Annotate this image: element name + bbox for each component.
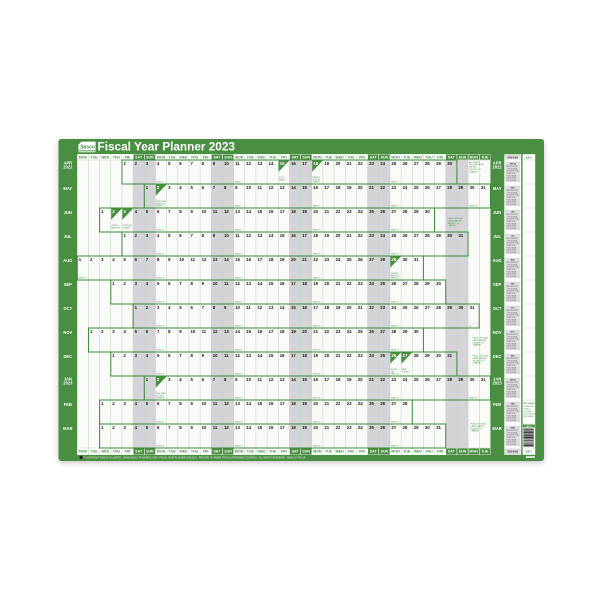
svg-text:T 4 11 18 25: T 4 11 18 25: [507, 221, 516, 223]
svg-text:10: 10: [213, 281, 218, 286]
svg-text:22: 22: [369, 305, 374, 310]
svg-text:F 5 12 19 26: F 5 12 19 26: [507, 247, 516, 249]
svg-text:SUN: SUN: [224, 450, 232, 454]
svg-text:17: 17: [302, 161, 307, 166]
svg-text:FRI: FRI: [437, 156, 443, 160]
svg-text:18: 18: [324, 305, 329, 310]
svg-text:20: 20: [358, 185, 363, 190]
svg-text:W 3 10 17 24 31: W 3 10 17 24 31: [507, 315, 519, 317]
svg-text:27: 27: [403, 281, 408, 286]
svg-text:S 6 13 20 27: S 6 13 20 27: [507, 346, 516, 348]
svg-text:T 4 11 18 25: T 4 11 18 25: [507, 197, 516, 199]
svg-text:WEEK 27: WEEK 27: [235, 325, 243, 327]
svg-text:18: 18: [302, 281, 307, 286]
svg-text:S 6 13 20 27: S 6 13 20 27: [507, 250, 516, 252]
svg-text:Sasco: Sasco: [80, 145, 95, 151]
svg-text:14: 14: [246, 401, 251, 406]
svg-text:24: 24: [336, 257, 341, 262]
svg-text:MAR: MAR: [492, 426, 501, 431]
svg-text:18: 18: [291, 209, 296, 214]
svg-text:S 6 13 20 27: S 6 13 20 27: [507, 226, 516, 228]
svg-text:SUN: SUN: [302, 450, 310, 454]
svg-text:CHANGE: CHANGE: [448, 224, 457, 227]
svg-text:14: 14: [269, 233, 274, 238]
svg-text:14: 14: [257, 281, 262, 286]
svg-text:29: 29: [436, 233, 441, 238]
svg-text:T 2 9 16 23 30: T 2 9 16 23 30: [507, 360, 518, 362]
svg-text:S 7 14 21 28: S 7 14 21 28: [507, 300, 516, 302]
svg-text:20: 20: [358, 377, 363, 382]
svg-text:WEEK 38: WEEK 38: [156, 397, 164, 399]
svg-text:W 3 10 17 24 31: W 3 10 17 24 31: [507, 219, 519, 221]
svg-text:27: 27: [425, 305, 430, 310]
svg-text:2024/25: 2024/25: [507, 450, 518, 454]
svg-text:SEP: SEP: [64, 282, 72, 287]
svg-text:21: 21: [347, 233, 352, 238]
svg-text:WEEK 37: WEEK 37: [391, 373, 399, 375]
svg-text:17: 17: [269, 329, 274, 334]
svg-text:F 5 12 19 26: F 5 12 19 26: [507, 319, 516, 321]
svg-text:S 7 14 21 28: S 7 14 21 28: [507, 372, 516, 374]
svg-text:16: 16: [280, 353, 285, 358]
svg-text:28: 28: [436, 305, 441, 310]
svg-text:M 1 8 15 22 29: M 1 8 15 22 29: [507, 238, 518, 240]
svg-text:SUN: SUN: [146, 450, 154, 454]
svg-text:T 4 11 18 25: T 4 11 18 25: [507, 173, 516, 175]
svg-text:30: 30: [436, 353, 441, 358]
svg-text:26: 26: [403, 233, 408, 238]
svg-text:13: 13: [235, 425, 240, 430]
svg-text:MON: MON: [391, 156, 400, 160]
svg-text:THU: THU: [425, 156, 433, 160]
svg-text:27: 27: [414, 233, 419, 238]
svg-text:F 5 12 19 26: F 5 12 19 26: [507, 271, 516, 273]
svg-text:25: 25: [369, 401, 374, 406]
svg-text:F 5 12 19 26: F 5 12 19 26: [507, 175, 516, 177]
svg-text:28: 28: [403, 425, 408, 430]
svg-text:WEEK 6: WEEK 6: [156, 205, 163, 207]
svg-text:31: 31: [436, 425, 441, 430]
svg-text:24: 24: [391, 305, 396, 310]
svg-text:29: 29: [436, 161, 441, 166]
svg-text:S 6 13 20 27: S 6 13 20 27: [507, 394, 516, 396]
svg-text:2022: 2022: [63, 165, 73, 170]
svg-text:M 1 8 15 22 29: M 1 8 15 22 29: [507, 310, 518, 312]
svg-text:17: 17: [280, 425, 285, 430]
svg-text:14: 14: [291, 185, 296, 190]
svg-text:15: 15: [302, 185, 307, 190]
svg-text:23: 23: [324, 257, 329, 262]
svg-text:T 4 11 18 25: T 4 11 18 25: [507, 413, 516, 415]
svg-text:WEEK 11: WEEK 11: [235, 229, 243, 231]
svg-text:WED: WED: [414, 156, 423, 160]
svg-text:F 5 12 19 26: F 5 12 19 26: [507, 367, 516, 369]
svg-text:TUE: TUE: [169, 450, 177, 454]
svg-text:S 7 14 21 28: S 7 14 21 28: [507, 228, 516, 230]
svg-text:15: 15: [280, 233, 285, 238]
svg-text:S 6 13 20 27: S 6 13 20 27: [507, 298, 516, 300]
svg-text:19: 19: [280, 257, 285, 262]
svg-text:10: 10: [246, 377, 251, 382]
svg-text:SAT: SAT: [135, 156, 143, 160]
svg-text:17: 17: [291, 281, 296, 286]
svg-text:WEEK 4: WEEK 4: [313, 181, 320, 183]
svg-text:18: 18: [291, 425, 296, 430]
svg-text:SAT: SAT: [213, 450, 221, 454]
svg-text:28: 28: [447, 185, 452, 190]
svg-text:SUN: SUN: [459, 156, 467, 160]
svg-text:OCT: OCT: [493, 306, 502, 311]
svg-text:26: 26: [425, 377, 430, 382]
svg-text:12: 12: [269, 377, 274, 382]
svg-text:31: 31: [481, 185, 486, 190]
svg-text:28: 28: [425, 161, 430, 166]
svg-text:12: 12: [269, 185, 274, 190]
svg-text:W 3 10 17 24 31: W 3 10 17 24 31: [507, 435, 519, 437]
svg-text:26: 26: [391, 353, 397, 358]
svg-text:30: 30: [447, 161, 452, 166]
svg-text:F 5 12 19 26: F 5 12 19 26: [507, 199, 516, 201]
svg-text:S 7 14 21 28: S 7 14 21 28: [507, 348, 516, 350]
svg-text:14: 14: [280, 305, 285, 310]
svg-text:WEEK 2: WEEK 2: [156, 181, 163, 183]
svg-text:27: 27: [369, 257, 374, 262]
svg-text:WEEK 26: WEEK 26: [156, 325, 164, 327]
svg-text:SAT: SAT: [448, 450, 456, 454]
svg-text:WEEK 21: WEEK 21: [391, 277, 399, 279]
svg-text:20: 20: [313, 209, 318, 214]
svg-text:F 5 12 19 26: F 5 12 19 26: [507, 391, 516, 393]
svg-text:30: 30: [470, 185, 475, 190]
svg-text:30: 30: [470, 377, 475, 382]
svg-text:T 4 11 18 25: T 4 11 18 25: [507, 341, 516, 343]
svg-text:18: 18: [336, 185, 341, 190]
svg-text:S 6 13 20 27: S 6 13 20 27: [507, 322, 516, 324]
svg-text:23: 23: [347, 425, 352, 430]
svg-text:TUE: TUE: [325, 156, 333, 160]
svg-text:30: 30: [425, 425, 430, 430]
svg-text:THU: THU: [191, 450, 199, 454]
svg-text:24: 24: [403, 377, 408, 382]
svg-text:WEEK 28: WEEK 28: [313, 325, 321, 327]
svg-text:KEY: KEY: [526, 450, 533, 454]
svg-text:25: 25: [369, 209, 374, 214]
svg-text:SASCO: SASCO: [526, 425, 533, 428]
svg-text:17: 17: [280, 401, 285, 406]
svg-text:11: 11: [224, 353, 229, 358]
svg-text:28: 28: [414, 353, 419, 358]
svg-text:26: 26: [380, 425, 385, 430]
svg-text:16: 16: [291, 161, 296, 166]
svg-text:29: 29: [447, 305, 452, 310]
svg-text:16: 16: [246, 257, 251, 262]
svg-text:WEEK 19: WEEK 19: [235, 277, 243, 279]
svg-text:26: 26: [403, 161, 408, 166]
svg-text:THU: THU: [191, 156, 199, 160]
svg-text:MAR: MAR: [63, 426, 72, 431]
svg-text:F 5 12 19 26: F 5 12 19 26: [507, 223, 516, 225]
svg-text:MON: MON: [391, 450, 400, 454]
svg-text:30: 30: [414, 329, 419, 334]
svg-text:F 5 12 19 26: F 5 12 19 26: [507, 295, 516, 297]
svg-text:APR 24: APR 24: [510, 162, 516, 165]
svg-text:© COPYRIGHT SASCO UK LIMITED ·: © COPYRIGHT SASCO UK LIMITED · WWW.SASCO…: [84, 457, 306, 460]
svg-text:29: 29: [425, 353, 430, 358]
svg-text:18: 18: [336, 377, 341, 382]
svg-text:14: 14: [257, 353, 262, 358]
svg-text:M 1 8 15 22 29: M 1 8 15 22 29: [507, 262, 518, 264]
svg-text:22: 22: [347, 281, 352, 286]
svg-text:S 6 13 20 27: S 6 13 20 27: [507, 418, 516, 420]
svg-text:TUE: TUE: [90, 156, 98, 160]
svg-text:19: 19: [347, 185, 352, 190]
svg-text:11: 11: [235, 233, 240, 238]
svg-text:WED: WED: [336, 156, 345, 160]
svg-text:WEEK 29: WEEK 29: [391, 325, 399, 327]
svg-text:27: 27: [391, 425, 396, 430]
svg-text:S 6 13 20 27: S 6 13 20 27: [507, 202, 516, 204]
svg-text:13: 13: [269, 305, 274, 310]
svg-text:28: 28: [425, 233, 430, 238]
svg-text:27: 27: [436, 185, 441, 190]
svg-text:WEEK 14: WEEK 14: [156, 253, 164, 255]
svg-text:23: 23: [391, 185, 396, 190]
svg-text:TUE: TUE: [325, 450, 333, 454]
svg-text:T 4 11 18 25: T 4 11 18 25: [507, 389, 516, 391]
svg-text:16: 16: [269, 401, 274, 406]
svg-text:2022: 2022: [493, 165, 503, 170]
svg-text:29: 29: [391, 257, 397, 262]
svg-text:25: 25: [414, 377, 419, 382]
svg-text:15: 15: [257, 209, 262, 214]
svg-text:TUE: TUE: [403, 450, 411, 454]
svg-text:CHANGE: CHANGE: [473, 344, 482, 347]
svg-text:CHANGE: CHANGE: [471, 430, 480, 433]
svg-text:F 5 12 19 26: F 5 12 19 26: [507, 343, 516, 345]
svg-text:THU: THU: [347, 156, 355, 160]
svg-text:16: 16: [302, 305, 307, 310]
svg-text:26: 26: [380, 209, 385, 214]
svg-text:JAN 25: JAN 25: [510, 378, 516, 381]
svg-text:WEEK 23: WEEK 23: [235, 301, 243, 303]
svg-text:20: 20: [302, 329, 307, 334]
svg-text:16: 16: [313, 377, 318, 382]
svg-text:MON: MON: [470, 450, 479, 454]
svg-text:SAT: SAT: [370, 450, 378, 454]
svg-text:31: 31: [414, 257, 419, 262]
svg-text:WEEK 5: WEEK 5: [391, 181, 398, 183]
svg-text:SUN: SUN: [302, 156, 310, 160]
svg-text:SEE DATES: SEE DATES: [524, 415, 535, 418]
svg-text:12: 12: [257, 305, 262, 310]
svg-text:WEEK 47: WEEK 47: [235, 445, 243, 447]
svg-text:21: 21: [324, 401, 329, 406]
svg-text:14: 14: [291, 377, 296, 382]
svg-text:13: 13: [213, 257, 218, 262]
svg-text:18: 18: [280, 329, 285, 334]
svg-text:15: 15: [302, 377, 307, 382]
svg-text:16: 16: [313, 185, 318, 190]
svg-text:W 3 10 17 24 31: W 3 10 17 24 31: [507, 411, 519, 413]
svg-text:14: 14: [235, 329, 240, 334]
svg-text:13: 13: [280, 377, 285, 382]
svg-text:17: 17: [291, 353, 296, 358]
svg-text:M 1 8 15 22 29: M 1 8 15 22 29: [507, 214, 518, 216]
svg-text:21: 21: [313, 329, 318, 334]
svg-text:26: 26: [414, 305, 419, 310]
svg-text:22: 22: [313, 257, 318, 262]
svg-text:NOV: NOV: [493, 330, 502, 335]
svg-text:11: 11: [257, 185, 262, 190]
svg-text:18: 18: [291, 401, 296, 406]
svg-text:11: 11: [257, 377, 262, 382]
svg-text:21: 21: [336, 353, 341, 358]
svg-text:22: 22: [380, 377, 385, 382]
svg-text:18: 18: [313, 233, 318, 238]
svg-text:T 4 11 18 25: T 4 11 18 25: [507, 269, 516, 271]
svg-text:T 2 9 16 23 30: T 2 9 16 23 30: [507, 192, 518, 194]
svg-text:SUN: SUN: [459, 450, 467, 454]
svg-text:SAT: SAT: [135, 450, 143, 454]
svg-text:WEEK 20: WEEK 20: [313, 277, 321, 279]
svg-text:29: 29: [458, 185, 463, 190]
svg-text:15: 15: [269, 353, 274, 358]
svg-text:S 7 14 21 28: S 7 14 21 28: [507, 324, 516, 326]
svg-text:WEEK 10: WEEK 10: [156, 229, 164, 231]
svg-text:S 6 13 20 27: S 6 13 20 27: [507, 370, 516, 372]
svg-text:WEEK 31: WEEK 31: [235, 349, 243, 351]
svg-text:MAY: MAY: [493, 186, 502, 191]
svg-text:12: 12: [235, 353, 240, 358]
svg-text:FRIDAY: FRIDAY: [279, 179, 286, 182]
svg-text:25: 25: [347, 257, 352, 262]
svg-text:21: 21: [358, 305, 363, 310]
svg-text:10: 10: [213, 353, 218, 358]
svg-text:W 3 10 17 24 31: W 3 10 17 24 31: [507, 243, 519, 245]
svg-text:30: 30: [425, 209, 430, 214]
svg-text:FEB: FEB: [64, 402, 72, 407]
svg-text:FRI: FRI: [359, 156, 365, 160]
svg-text:17: 17: [324, 377, 329, 382]
svg-text:15: 15: [280, 161, 286, 166]
svg-text:SUN: SUN: [381, 156, 389, 160]
svg-text:25: 25: [391, 233, 396, 238]
svg-text:M 1 8 15 22 29: M 1 8 15 22 29: [507, 166, 518, 168]
svg-text:THU: THU: [425, 450, 433, 454]
svg-text:31: 31: [447, 353, 452, 358]
svg-text:WEEK 12: WEEK 12: [313, 229, 321, 231]
svg-text:21: 21: [369, 377, 374, 382]
svg-text:17: 17: [257, 257, 262, 262]
svg-text:WEEK 10: WEEK 10: [469, 205, 477, 207]
svg-text:17: 17: [280, 209, 285, 214]
svg-text:FEB: FEB: [493, 402, 501, 407]
svg-text:28: 28: [403, 401, 408, 406]
svg-text:WEEK 35: WEEK 35: [235, 373, 243, 375]
svg-text:F 5 12 19 26: F 5 12 19 26: [507, 439, 516, 441]
svg-text:WEEK 49: WEEK 49: [391, 445, 399, 447]
svg-text:S 7 14 21 28: S 7 14 21 28: [507, 276, 516, 278]
svg-text:WEEK 33: WEEK 33: [391, 349, 399, 351]
svg-text:19: 19: [336, 305, 341, 310]
svg-text:NOV: NOV: [63, 330, 72, 335]
svg-text:THU: THU: [113, 450, 121, 454]
svg-text:12: 12: [224, 425, 229, 430]
svg-text:T 2 9 16 23 30: T 2 9 16 23 30: [507, 432, 518, 434]
svg-text:26: 26: [369, 329, 374, 334]
svg-text:17: 17: [324, 185, 329, 190]
svg-text:31: 31: [470, 305, 475, 310]
svg-text:12: 12: [224, 401, 229, 406]
svg-text:WEEK 36: WEEK 36: [313, 373, 321, 375]
svg-text:TUE: TUE: [169, 156, 177, 160]
svg-text:19: 19: [313, 281, 318, 286]
svg-text:FRI: FRI: [125, 450, 131, 454]
svg-text:30: 30: [403, 257, 408, 262]
svg-text:27: 27: [402, 353, 408, 358]
svg-text:S 7 14 21 28: S 7 14 21 28: [507, 204, 516, 206]
svg-text:17: 17: [302, 233, 307, 238]
svg-text:24: 24: [358, 425, 363, 430]
svg-text:SAT: SAT: [213, 156, 221, 160]
svg-text:WEEK 48: WEEK 48: [313, 445, 321, 447]
svg-text:T 2 9 16 23 30: T 2 9 16 23 30: [507, 336, 518, 338]
svg-text:15: 15: [257, 401, 262, 406]
svg-text:JUBILEE: JUBILEE: [123, 228, 131, 230]
svg-text:23: 23: [336, 329, 341, 334]
svg-text:WEEK 15: WEEK 15: [235, 253, 243, 255]
svg-text:20: 20: [313, 401, 318, 406]
svg-text:15: 15: [246, 329, 251, 334]
svg-text:16: 16: [257, 329, 262, 334]
svg-text:26: 26: [358, 257, 363, 262]
svg-text:25: 25: [369, 425, 374, 430]
svg-text:WEEK 30: WEEK 30: [156, 349, 164, 351]
svg-text:20: 20: [347, 305, 352, 310]
svg-text:MAR: MAR: [511, 426, 516, 429]
svg-text:19: 19: [347, 377, 352, 382]
svg-text:21: 21: [324, 209, 329, 214]
svg-text:23: 23: [391, 377, 396, 382]
svg-text:2023: 2023: [493, 381, 503, 386]
svg-text:26: 26: [425, 185, 430, 190]
svg-text:18: 18: [269, 257, 274, 262]
svg-text:21: 21: [369, 185, 374, 190]
svg-text:23: 23: [369, 161, 374, 166]
svg-text:WEEK 32: WEEK 32: [313, 349, 321, 351]
svg-text:WEEK 40: WEEK 40: [313, 397, 321, 399]
svg-text:WEEK 7: WEEK 7: [235, 205, 242, 207]
svg-text:T 2 9 16 23 30: T 2 9 16 23 30: [507, 240, 518, 242]
svg-text:13: 13: [224, 329, 229, 334]
svg-text:W 3 10 17 24 31: W 3 10 17 24 31: [507, 339, 519, 341]
svg-text:19: 19: [302, 209, 307, 214]
svg-text:SAT: SAT: [292, 450, 300, 454]
svg-text:27: 27: [380, 329, 385, 334]
svg-text:KEY DATES: KEY DATES: [524, 402, 536, 405]
svg-text:TUE: TUE: [90, 450, 98, 454]
svg-text:WED: WED: [257, 450, 266, 454]
svg-text:14: 14: [246, 425, 251, 430]
svg-text:MON: MON: [470, 156, 479, 160]
svg-text:SUN: SUN: [381, 450, 389, 454]
svg-text:SAT: SAT: [292, 156, 300, 160]
svg-text:MON: MON: [79, 450, 88, 454]
svg-text:WED: WED: [179, 450, 188, 454]
svg-text:T 2 9 16 23 30: T 2 9 16 23 30: [507, 408, 518, 410]
svg-text:12: 12: [213, 329, 218, 334]
svg-text:MON: MON: [79, 156, 88, 160]
